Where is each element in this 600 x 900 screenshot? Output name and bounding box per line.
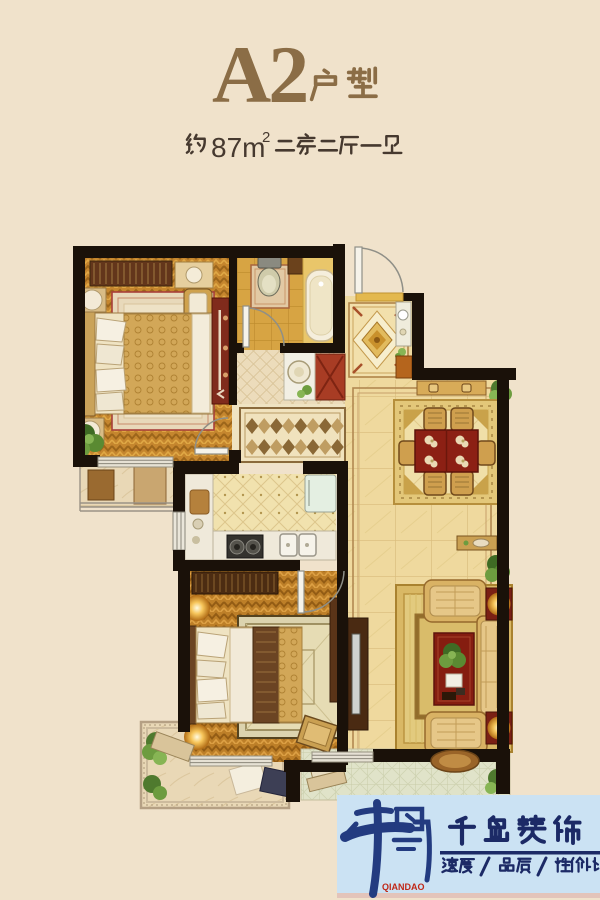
svg-text:87m: 87m: [211, 132, 265, 163]
svg-text:2: 2: [262, 129, 270, 146]
svg-text:A2: A2: [212, 29, 306, 120]
svg-text:QIANDAO: QIANDAO: [382, 882, 425, 892]
